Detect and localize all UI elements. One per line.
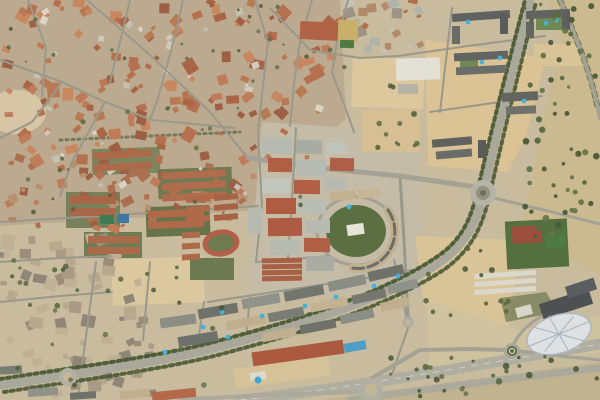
- park-pavilion: [346, 223, 364, 236]
- satellite-map-viewport[interactable]: [0, 0, 600, 400]
- olive-trees-east: [553, 112, 557, 116]
- market-roof: [300, 21, 341, 41]
- satellite-map[interactable]: [0, 0, 600, 400]
- striped-warehouse-roof: [262, 258, 302, 264]
- running-track: [204, 230, 239, 256]
- big-white-building: [396, 57, 441, 81]
- swimming-pools: [480, 60, 485, 65]
- street-trees-oldtown: [34, 17, 38, 21]
